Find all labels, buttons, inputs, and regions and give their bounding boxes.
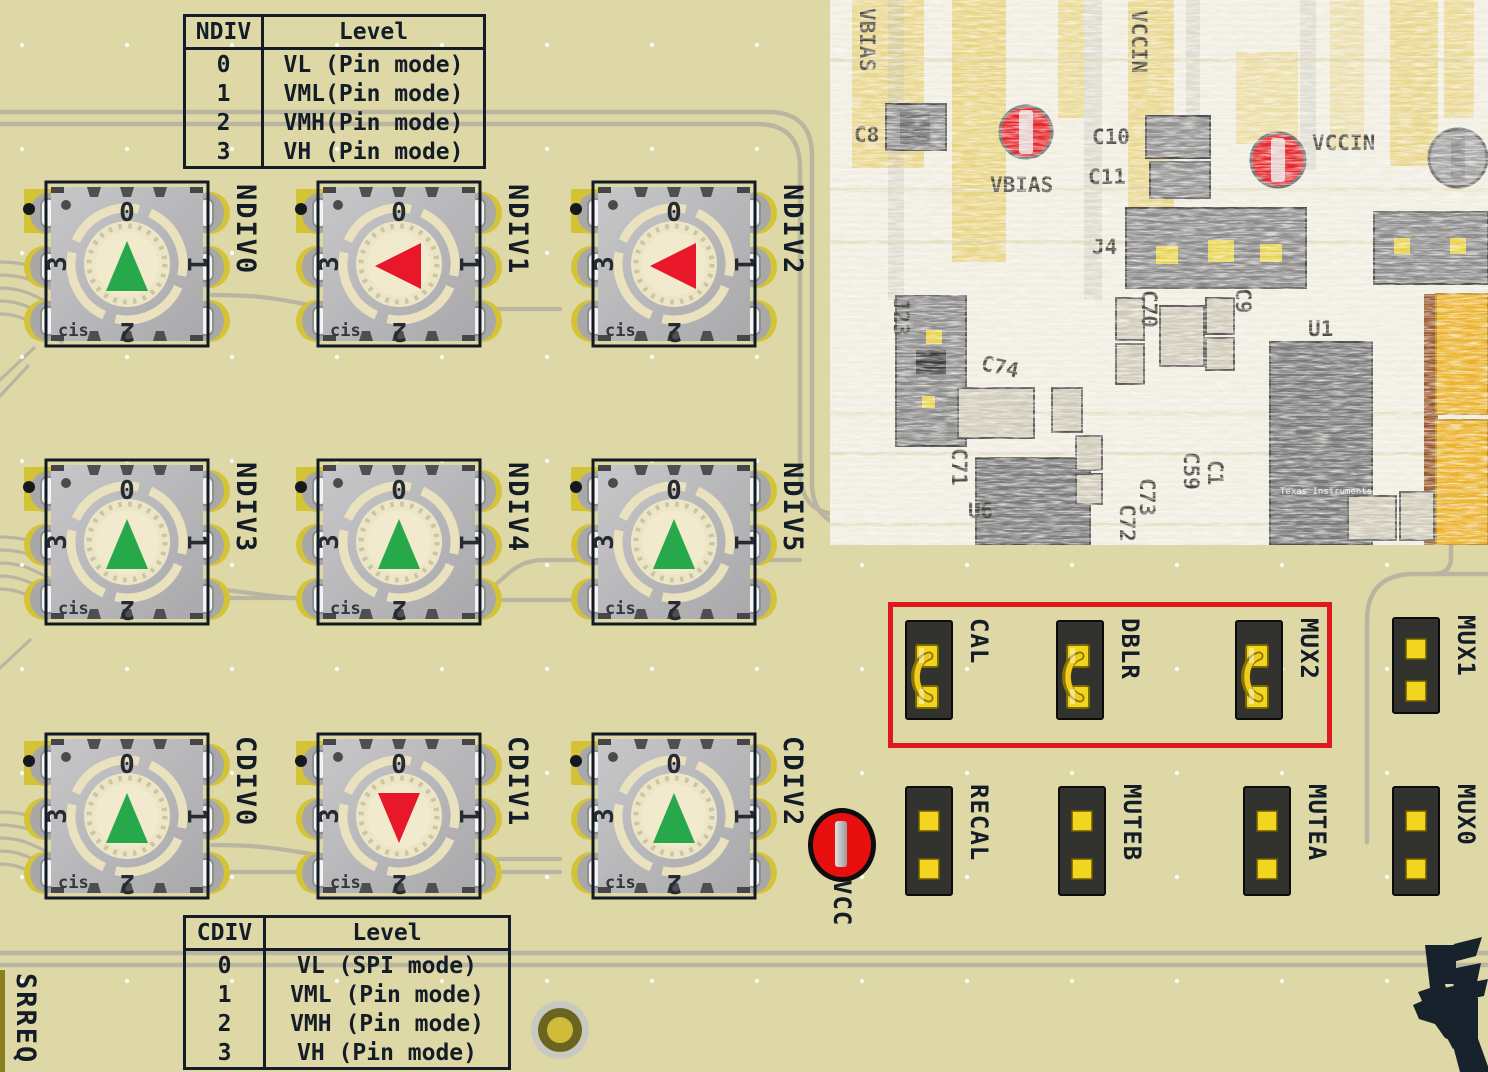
- dial-position-2: 2: [119, 868, 135, 898]
- dial-position-2: 2: [666, 316, 682, 346]
- jumper-MUTEA[interactable]: [1243, 786, 1291, 900]
- jumper-pin-pad: [1072, 811, 1092, 831]
- dial-position-3: 3: [43, 256, 73, 272]
- dial-position-2: 2: [666, 594, 682, 624]
- pin1-dot: [295, 755, 307, 767]
- table-cell: 0: [186, 951, 266, 980]
- dial-position-1: 1: [453, 534, 483, 550]
- dial-position-2: 2: [119, 594, 135, 624]
- jumper-label-MUX0: MUX0: [1452, 784, 1480, 846]
- dial-position-1: 1: [181, 808, 211, 824]
- pin1-dot: [23, 481, 35, 493]
- dial-position-2: 2: [666, 868, 682, 898]
- table-cell: 2: [186, 1009, 266, 1038]
- rotary-switch-NDIV2[interactable]: 0 1 2 3 cis: [569, 179, 779, 355]
- dial-position-0: 0: [119, 750, 135, 780]
- jumper-pin-pad: [1406, 811, 1426, 831]
- dial-position-3: 3: [315, 534, 345, 550]
- vcc-label: VCC: [828, 880, 856, 926]
- dial-cis-label: cis: [58, 599, 89, 619]
- dial-position-3: 3: [315, 808, 345, 824]
- dial-position-0: 0: [666, 476, 682, 506]
- table-header: Level: [264, 17, 483, 50]
- dial-position-1: 1: [728, 808, 758, 824]
- switch-label-NDIV0: NDIV0: [230, 184, 261, 275]
- dial-position-0: 0: [391, 750, 407, 780]
- pin1-dot: [23, 203, 35, 215]
- table-cell: 1: [186, 980, 266, 1009]
- dial-position-0: 0: [119, 198, 135, 228]
- dial-position-3: 3: [590, 534, 620, 550]
- table-cell: 1: [186, 79, 264, 108]
- table-cell: VH (Pin mode): [264, 137, 483, 166]
- vcc-test-point[interactable]: [808, 808, 876, 882]
- table-cell: VMH(Pin mode): [264, 108, 483, 137]
- jumper-pin-pad: [1406, 639, 1426, 659]
- dial-position-1: 1: [728, 534, 758, 550]
- table-cell: VMH (Pin mode): [266, 1009, 508, 1038]
- ndiv-level-table: NDIVLevel0VL (Pin mode)1VML(Pin mode)2VM…: [183, 14, 486, 169]
- dial-position-2: 2: [391, 594, 407, 624]
- jumper-label-MUX1: MUX1: [1452, 615, 1480, 677]
- rotary-switch-CDIV0[interactable]: 0 1 2 3 cis: [22, 731, 232, 907]
- rotary-switch-CDIV1[interactable]: 0 1 2 3 cis: [294, 731, 504, 907]
- table-cell: 3: [186, 1038, 266, 1067]
- table-cell: VML(Pin mode): [264, 79, 483, 108]
- texas-instruments-logo-icon: [1368, 928, 1488, 1072]
- switch-label-NDIV1: NDIV1: [502, 184, 533, 275]
- pin1-dot: [295, 203, 307, 215]
- dial-position-0: 0: [666, 198, 682, 228]
- dial-position-1: 1: [453, 256, 483, 272]
- switch-label-CDIV0: CDIV0: [230, 736, 261, 827]
- switch-label-CDIV2: CDIV2: [777, 736, 808, 827]
- dial-position-3: 3: [315, 256, 345, 272]
- jumper-pin-pad: [1072, 859, 1092, 879]
- jumper-pin-pad: [919, 859, 939, 879]
- jumper-pin-pad: [1257, 811, 1277, 831]
- switch-label-CDIV1: CDIV1: [502, 736, 533, 827]
- table-cell: VML (Pin mode): [266, 980, 508, 1009]
- dial-position-2: 2: [119, 316, 135, 346]
- dial-position-1: 1: [728, 256, 758, 272]
- jumper-label-MUTEA: MUTEA: [1303, 784, 1331, 861]
- rotary-switch-NDIV1[interactable]: 0 1 2 3 cis: [294, 179, 504, 355]
- dial-position-2: 2: [391, 868, 407, 898]
- table-cell: 0: [186, 50, 264, 79]
- dial-position-1: 1: [181, 534, 211, 550]
- board-photo-overlay: Texas InstrumentsVBIASC8VBIASVCCINC10C11…: [830, 0, 1488, 545]
- table-cell: 2: [186, 108, 264, 137]
- jumper-pin-pad: [1406, 859, 1426, 879]
- dial-position-3: 3: [590, 256, 620, 272]
- pin1-dot: [23, 755, 35, 767]
- switch-label-NDIV2: NDIV2: [777, 184, 808, 275]
- switch-label-NDIV5: NDIV5: [777, 462, 808, 553]
- pin1-dot: [570, 755, 582, 767]
- jumper-MUX0[interactable]: [1392, 786, 1440, 900]
- jumper-label-DBLR: DBLR: [1116, 618, 1144, 680]
- vcc-test-point-slot: [835, 821, 847, 867]
- dial-cis-label: cis: [58, 873, 89, 893]
- rotary-switch-NDIV3[interactable]: 0 1 2 3 cis: [22, 457, 232, 633]
- jumper-pin-pad: [1406, 681, 1426, 701]
- pin1-dot: [570, 481, 582, 493]
- dial-position-0: 0: [391, 476, 407, 506]
- mounting-via: [531, 1001, 589, 1059]
- jumper-pin-pad: [1257, 859, 1277, 879]
- jumper-MUX1[interactable]: [1392, 617, 1440, 718]
- jumper-pin-pad: [919, 811, 939, 831]
- jumper-label-MUTEB: MUTEB: [1118, 784, 1146, 861]
- table-header: CDIV: [186, 918, 266, 951]
- srreq-label: SRREQ: [10, 973, 41, 1064]
- switch-label-NDIV4: NDIV4: [502, 462, 533, 553]
- dial-position-0: 0: [666, 750, 682, 780]
- table-header: Level: [266, 918, 508, 951]
- dial-cis-label: cis: [605, 873, 636, 893]
- table-cell: VL (SPI mode): [266, 951, 508, 980]
- dial-cis-label: cis: [605, 321, 636, 341]
- dial-position-1: 1: [453, 808, 483, 824]
- cdiv-level-table: CDIVLevel0VL (SPI mode)1VML (Pin mode)2V…: [183, 915, 511, 1070]
- dial-position-3: 3: [43, 808, 73, 824]
- jumper-MUTEB[interactable]: [1058, 786, 1106, 900]
- jumper-CAL[interactable]: [905, 620, 953, 724]
- jumper-label-MUX2: MUX2: [1295, 618, 1323, 680]
- dial-position-1: 1: [181, 256, 211, 272]
- jumper-MUX2[interactable]: [1235, 620, 1283, 724]
- jumper-DBLR[interactable]: [1056, 620, 1104, 724]
- dial-position-0: 0: [391, 198, 407, 228]
- table-header: NDIV: [186, 17, 264, 50]
- pin1-dot: [570, 203, 582, 215]
- dial-position-3: 3: [590, 808, 620, 824]
- dial-cis-label: cis: [330, 321, 361, 341]
- switch-label-NDIV3: NDIV3: [230, 462, 261, 553]
- pin1-dot: [295, 481, 307, 493]
- rotary-switch-NDIV4[interactable]: 0 1 2 3 cis: [294, 457, 504, 633]
- rotary-switch-NDIV0[interactable]: 0 1 2 3 cis: [22, 179, 232, 355]
- jumper-RECAL[interactable]: [905, 786, 953, 900]
- dial-cis-label: cis: [605, 599, 636, 619]
- dial-position-0: 0: [119, 476, 135, 506]
- rotary-switch-CDIV2[interactable]: 0 1 2 3 cis: [569, 731, 779, 907]
- dial-position-2: 2: [391, 316, 407, 346]
- dial-cis-label: cis: [330, 599, 361, 619]
- table-cell: VH (Pin mode): [266, 1038, 508, 1067]
- jumper-label-RECAL: RECAL: [965, 784, 993, 861]
- rotary-switch-NDIV5[interactable]: 0 1 2 3 cis: [569, 457, 779, 633]
- dial-position-3: 3: [43, 534, 73, 550]
- table-cell: VL (Pin mode): [264, 50, 483, 79]
- pcb-board-layout: NDIVLevel0VL (Pin mode)1VML(Pin mode)2VM…: [0, 0, 1488, 1072]
- jumper-label-CAL: CAL: [965, 618, 993, 664]
- dial-cis-label: cis: [58, 321, 89, 341]
- table-cell: 3: [186, 137, 264, 166]
- dial-cis-label: cis: [330, 873, 361, 893]
